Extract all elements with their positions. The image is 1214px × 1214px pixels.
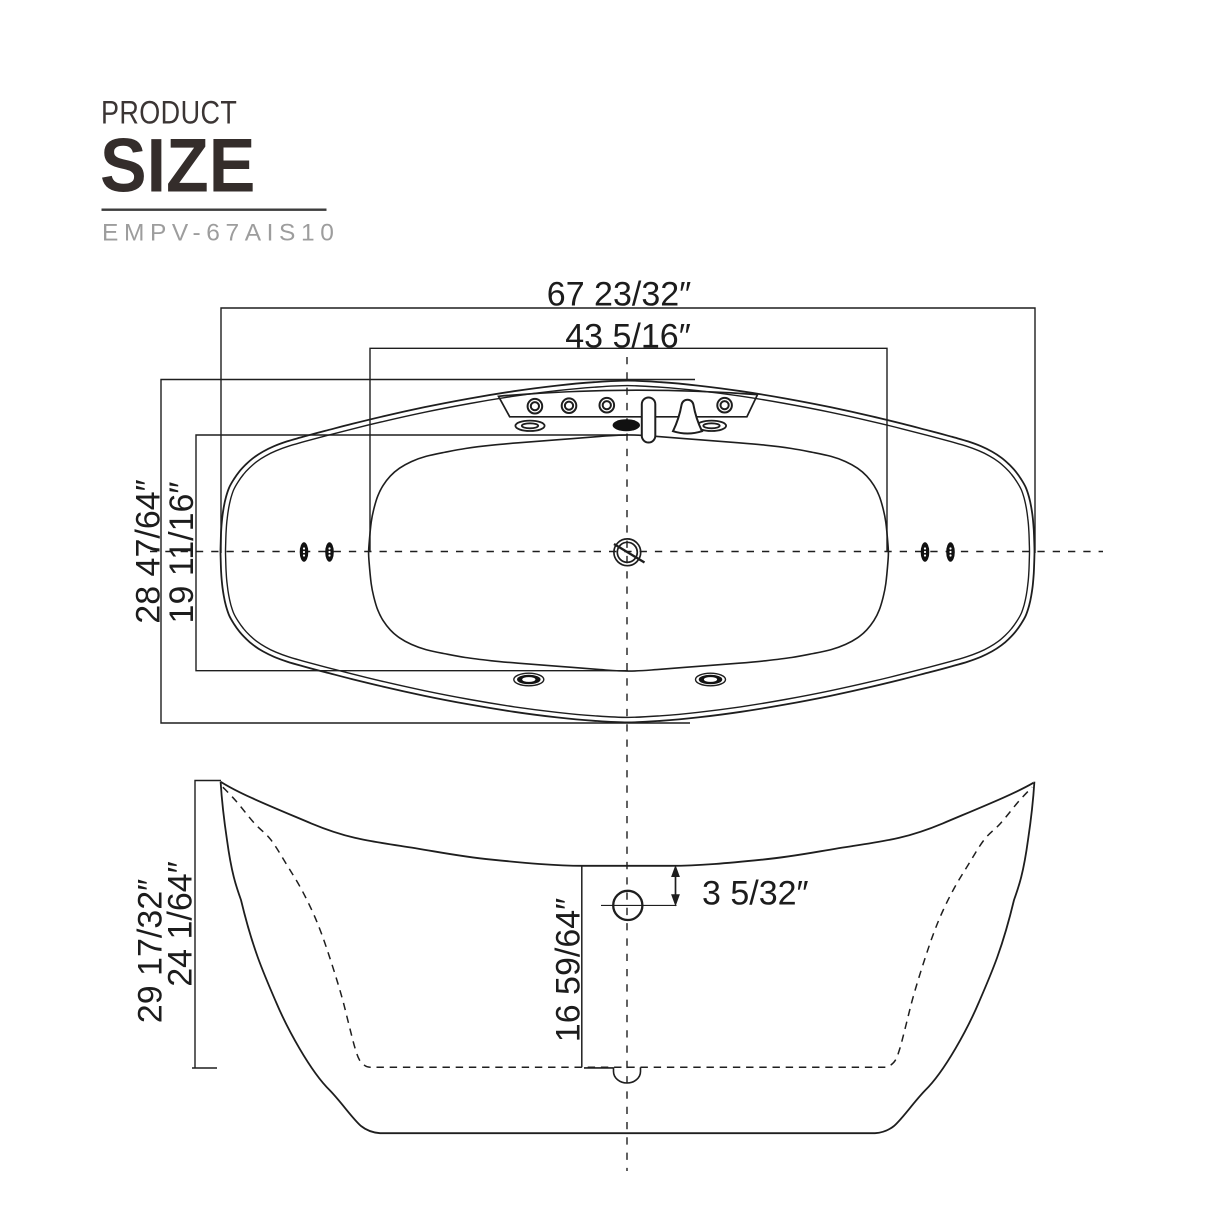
svg-text:19 11/16″: 19 11/16″ bbox=[163, 482, 201, 624]
svg-text:SIZE: SIZE bbox=[100, 124, 255, 208]
svg-text:67 23/32″: 67 23/32″ bbox=[547, 276, 691, 314]
svg-text:28 47/64″: 28 47/64″ bbox=[130, 479, 168, 623]
svg-text:EMPV-67AIS10: EMPV-67AIS10 bbox=[102, 220, 339, 247]
svg-text:3 5/32″: 3 5/32″ bbox=[702, 875, 809, 913]
svg-text:43 5/16″: 43 5/16″ bbox=[565, 318, 690, 356]
svg-text:16 59/64″: 16 59/64″ bbox=[550, 898, 588, 1042]
svg-text:24 1/64″: 24 1/64″ bbox=[162, 861, 200, 986]
